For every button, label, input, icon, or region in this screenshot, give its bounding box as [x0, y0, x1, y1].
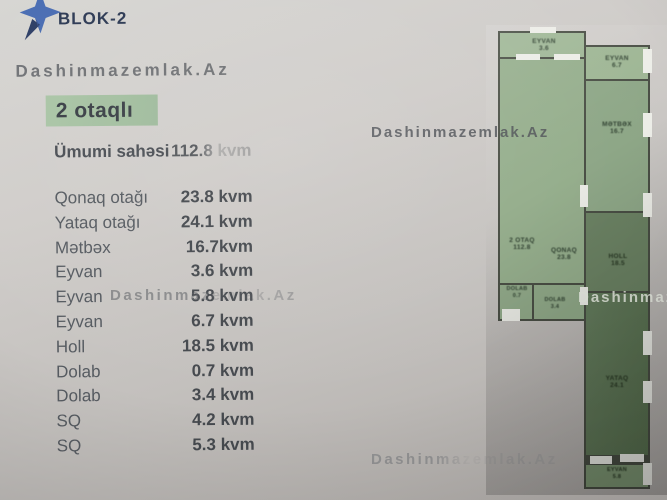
total-area-row: Ümumi sahəsi 112.8 kvm [54, 140, 314, 162]
room-area: 5.3 kvm [192, 435, 255, 456]
room-area: 24.1 kvm [181, 212, 253, 233]
room-name: Qonaq otağı [54, 188, 148, 209]
room-area: 5.8 kvm [191, 286, 254, 307]
table-row: Mətbəx 16.7kvm [55, 236, 253, 263]
window [643, 193, 652, 217]
plan-label-eyvan-top-left: EYVAN 3.6 [522, 38, 566, 52]
plan-label-dolab-1: DOLAB 0.7 [500, 286, 534, 300]
table-row: Qonaq otağı 23.8 kvm [54, 187, 252, 214]
room-name: SQ [56, 411, 81, 431]
room-area: 3.6 kvm [191, 261, 254, 282]
room-area: 3.4 kvm [192, 385, 255, 406]
door-opening [580, 287, 588, 305]
plan-label-metbex: MƏTBƏX 16.7 [594, 121, 640, 135]
blok2-star-logo-icon [14, 0, 62, 45]
table-row: Yataq otağı 24.1 kvm [55, 212, 253, 239]
plan-room-holl [584, 211, 650, 293]
plan-room-metbex [584, 79, 650, 213]
window [643, 331, 652, 355]
plan-label-eyvan-top-right: EYVAN 6.7 [594, 55, 640, 69]
plan-label-holl: HOLL 18.5 [598, 253, 638, 267]
plan-label-eyvan-bottom: EYVAN 5.8 [592, 467, 642, 481]
photographed-listing-sheet: BLOK-2 Dashinmazemlak.Az 2 otaqlı Ümumi … [0, 0, 667, 500]
window [643, 113, 652, 137]
area-table: Qonaq otağı 23.8 kvm Yataq otağı 24.1 kv… [54, 187, 254, 461]
table-row: Eyvan 3.6 kvm [55, 261, 253, 288]
room-name: Yataq otağı [55, 212, 141, 233]
total-area-label: Ümumi sahəsi [54, 141, 171, 162]
room-name: Eyvan [55, 287, 102, 307]
window [554, 54, 580, 60]
door-opening [580, 185, 588, 207]
logo-text: BLOK-2 [58, 9, 127, 30]
total-area-value: 112.8 kvm [171, 141, 252, 162]
plan-label-dolab-2: DOLAB 3.4 [538, 297, 572, 311]
room-name: SQ [57, 436, 82, 456]
table-row: SQ 4.2 kvm [56, 410, 254, 437]
room-area: 23.8 kvm [181, 187, 253, 208]
window [643, 381, 652, 403]
listing-title-highlight: 2 otaqlı [46, 95, 158, 127]
table-row: Dolab 3.4 kvm [56, 385, 254, 412]
room-name: Holl [56, 337, 85, 357]
window [516, 54, 540, 60]
plan-label-qonaq: QONAQ 23.8 [542, 247, 586, 261]
table-row: Holl 18.5 kvm [56, 335, 254, 362]
room-name: Dolab [56, 362, 101, 382]
window [643, 463, 652, 485]
plan-label-total: 2 OTAQ 112.8 [502, 237, 542, 251]
room-name: Eyvan [55, 262, 102, 282]
window [590, 456, 612, 464]
table-row: Dolab 0.7 kvm [56, 360, 254, 387]
room-area: 6.7 kvm [191, 311, 254, 332]
table-row: Eyvan 5.8 kvm [55, 286, 253, 313]
table-row: Eyvan 6.7 kvm [56, 311, 254, 338]
watermark-top: Dashinmazemlak.Az [15, 60, 230, 82]
window [530, 27, 556, 33]
floor-plan: EYVAN 3.6 2 OTAQ 112.8 QONAQ 23.8 DOLAB … [486, 25, 667, 495]
door-opening [502, 309, 520, 321]
room-area: 18.5 kvm [182, 335, 254, 356]
room-name: Mətbəx [55, 238, 111, 258]
plan-label-yataq: YATAQ 24.1 [590, 375, 644, 389]
listing-title: 2 otaqlı [56, 98, 134, 123]
window [620, 454, 644, 462]
room-name: Dolab [56, 386, 101, 406]
window [643, 49, 652, 73]
table-row: SQ 5.3 kvm [57, 435, 255, 462]
room-area: 0.7 kvm [192, 360, 255, 381]
room-area: 16.7kvm [186, 236, 253, 257]
room-name: Eyvan [56, 312, 103, 332]
room-area: 4.2 kvm [192, 410, 255, 431]
